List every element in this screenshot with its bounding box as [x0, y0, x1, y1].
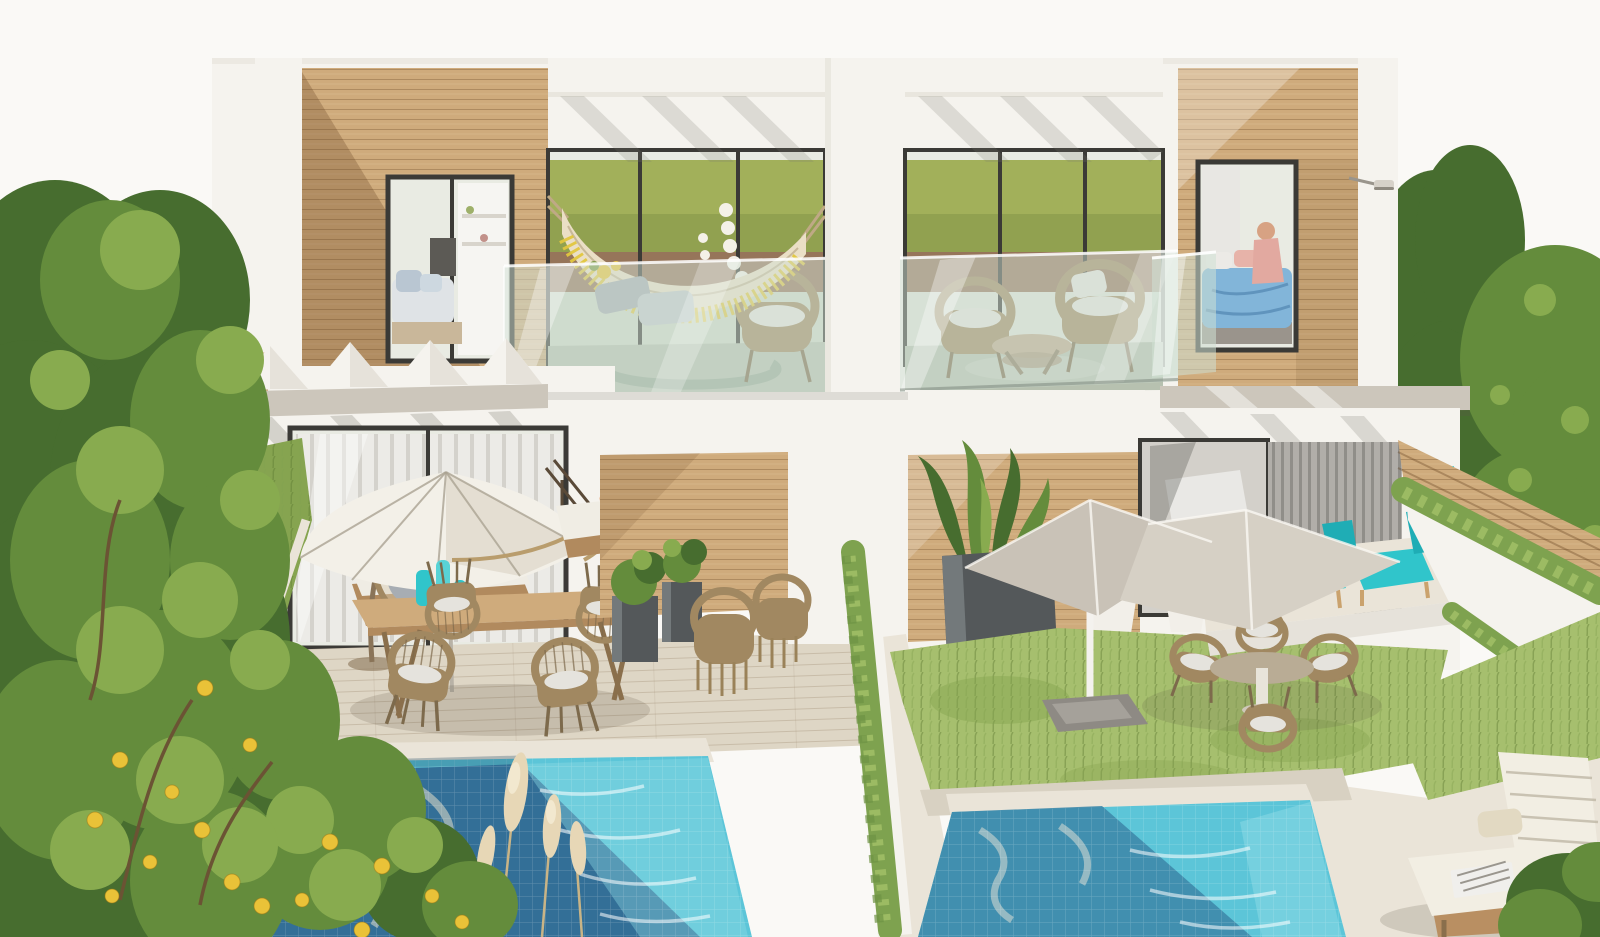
- mini-balcony-glass: [1152, 252, 1216, 378]
- mid-slab-right: [905, 390, 1145, 454]
- center-pillar: [825, 58, 905, 403]
- lower-right-garden: [890, 408, 1460, 814]
- left-bedroom-window: [388, 177, 512, 361]
- render-canvas: [0, 0, 1600, 937]
- bolster-pillow: [1477, 808, 1523, 838]
- villa-aerial-render: Aerial render of a modern white duplex v…: [0, 0, 1600, 937]
- tv: [430, 238, 456, 276]
- daybed-interior: [392, 270, 462, 344]
- pool-right: [918, 784, 1346, 937]
